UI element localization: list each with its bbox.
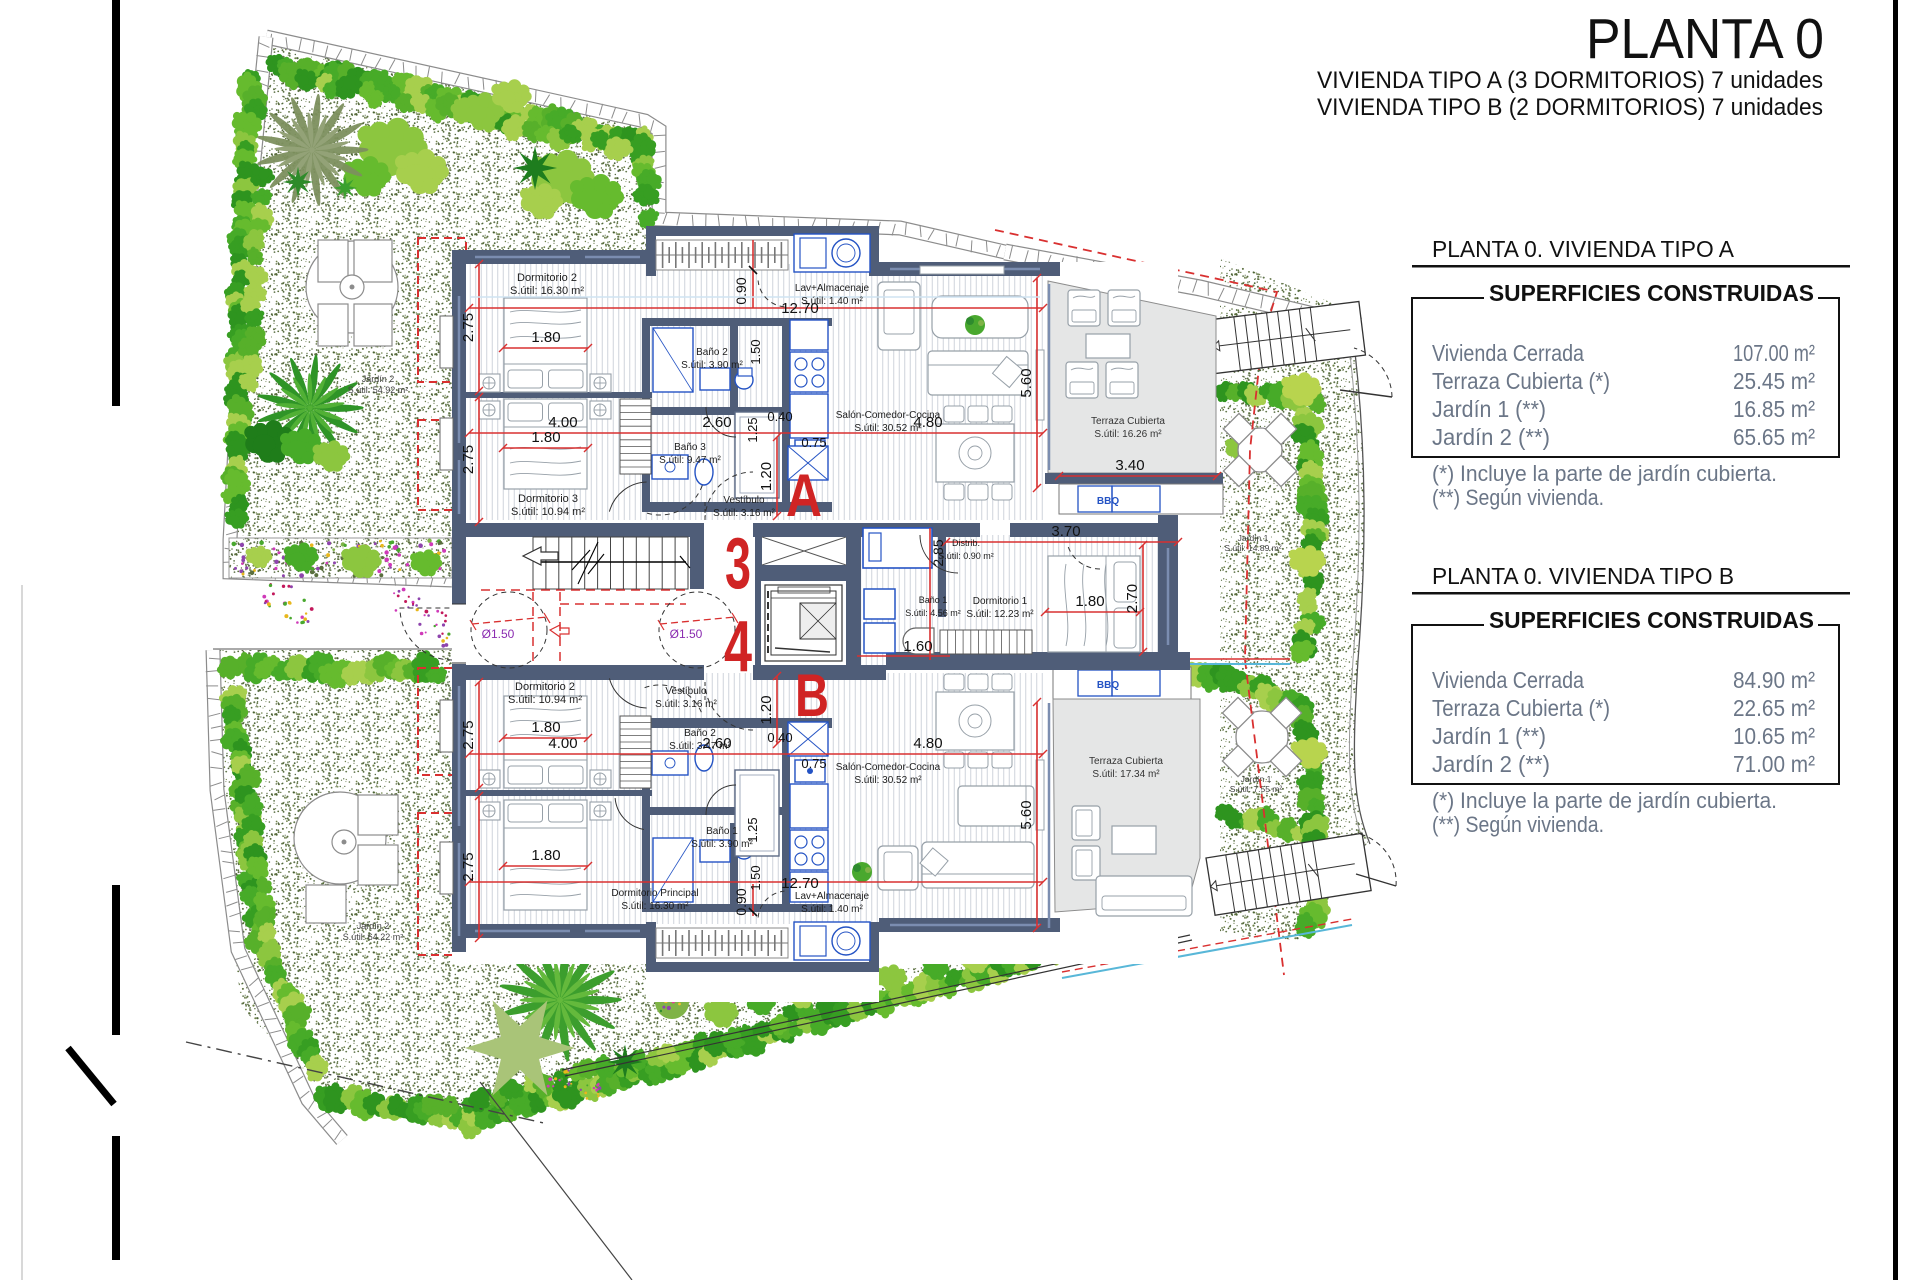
svg-text:(*) Incluye la parte de jardí: (*) Incluye la parte de jardín cubierta. (1432, 788, 1777, 813)
svg-text:1.50: 1.50 (748, 865, 763, 890)
svg-text:1.80: 1.80 (531, 847, 560, 864)
svg-text:107.00 m²: 107.00 m² (1733, 340, 1815, 366)
svg-text:BBQ: BBQ (1097, 680, 1119, 691)
svg-text:10.65 m²: 10.65 m² (1733, 723, 1815, 749)
svg-text:Jardín 2: Jardín 2 (357, 921, 390, 931)
svg-text:(**) Según vivienda.: (**) Según vivienda. (1432, 812, 1604, 837)
svg-text:Dormitorio 3: Dormitorio 3 (518, 493, 578, 505)
svg-text:Terraza Cubierta: Terraza Cubierta (1089, 756, 1163, 767)
svg-text:PLANTA 0: PLANTA 0 (1586, 7, 1824, 71)
svg-text:S.útil: 14.89 m²: S.útil: 14.89 m² (1224, 543, 1281, 553)
svg-text:S.útil: 16.30 m²: S.útil: 16.30 m² (621, 901, 689, 912)
svg-text:4.80: 4.80 (913, 735, 942, 752)
svg-text:S.útil: 4.56 m²: S.útil: 4.56 m² (905, 608, 961, 618)
svg-text:S.útil: 7.55 m²: S.útil: 7.55 m² (1230, 784, 1283, 794)
svg-text:S.útil: 30.52 m²: S.útil: 30.52 m² (854, 775, 922, 786)
svg-text:Dormitorio 2: Dormitorio 2 (517, 272, 577, 284)
svg-text:Dormitorio Principal: Dormitorio Principal (611, 888, 698, 899)
svg-text:Ø1.50: Ø1.50 (670, 627, 703, 641)
svg-text:Baño 1: Baño 1 (919, 595, 948, 605)
svg-text:Vestíbulo: Vestíbulo (723, 495, 765, 506)
svg-text:(**) Según vivienda.: (**) Según vivienda. (1432, 485, 1604, 510)
svg-text:S.útil: 0.90 m²: S.útil: 0.90 m² (938, 551, 994, 561)
svg-text:Baño 2: Baño 2 (696, 347, 728, 358)
svg-text:S.útil: 3.90 m²: S.útil: 3.90 m² (691, 839, 753, 850)
svg-text:BBQ: BBQ (1097, 496, 1119, 507)
svg-text:PLANTA 0. VIVIENDA TIPO A: PLANTA 0. VIVIENDA TIPO A (1432, 236, 1735, 262)
svg-text:S.útil: 64.22 m²: S.útil: 64.22 m² (343, 932, 404, 942)
svg-text:2.70: 2.70 (1124, 584, 1141, 613)
svg-text:1.80: 1.80 (531, 429, 560, 446)
svg-text:S.útil: 3.90 m²: S.útil: 3.90 m² (681, 360, 743, 371)
svg-text:S.útil: 16.26 m²: S.útil: 16.26 m² (1094, 429, 1162, 440)
svg-text:S.útil: 10.94 m²: S.útil: 10.94 m² (508, 694, 582, 706)
svg-text:S.útil: 3.16 m²: S.útil: 3.16 m² (655, 699, 717, 710)
svg-text:5.60: 5.60 (1018, 800, 1035, 829)
svg-text:Terraza Cubierta (*): Terraza Cubierta (*) (1432, 695, 1610, 721)
svg-text:Jardín 1 (**): Jardín 1 (**) (1432, 723, 1546, 749)
svg-text:S.útil: 17.34 m²: S.útil: 17.34 m² (1092, 769, 1160, 780)
svg-text:Jardín 1: Jardín 1 (1238, 533, 1269, 543)
svg-text:S.útil: 12.23 m²: S.útil: 12.23 m² (966, 609, 1034, 620)
svg-text:Lav+Almacenaje: Lav+Almacenaje (795, 283, 870, 294)
svg-text:2.60: 2.60 (702, 414, 731, 431)
svg-text:Jardín 1 (**): Jardín 1 (**) (1432, 396, 1546, 422)
svg-text:Vivienda Cerrada: Vivienda Cerrada (1432, 340, 1584, 366)
svg-text:1.80: 1.80 (1075, 593, 1104, 610)
svg-text:Ø1.50: Ø1.50 (482, 627, 515, 641)
svg-text:0.90: 0.90 (733, 277, 749, 304)
svg-text:Jardín 1: Jardín 1 (1241, 774, 1272, 784)
svg-text:VIVIENDA TIPO A (3 DORMITORIOS: VIVIENDA TIPO A (3 DORMITORIOS) 7 unidad… (1317, 67, 1823, 94)
svg-text:Terraza Cubierta (*): Terraza Cubierta (*) (1432, 368, 1610, 394)
svg-text:1.25: 1.25 (745, 417, 760, 442)
svg-text:2.75: 2.75 (460, 852, 477, 881)
svg-text:S.útil: 3.16 m²: S.útil: 3.16 m² (713, 508, 775, 519)
svg-text:S.útil: 30.52 m²: S.útil: 30.52 m² (854, 423, 922, 434)
svg-text:Vivienda Cerrada: Vivienda Cerrada (1432, 667, 1584, 693)
svg-text:5.60: 5.60 (1018, 368, 1035, 397)
svg-text:1.80: 1.80 (531, 329, 560, 346)
svg-text:12.70: 12.70 (781, 875, 819, 892)
svg-text:Baño 3: Baño 3 (674, 442, 706, 453)
svg-text:0.90: 0.90 (733, 888, 749, 915)
svg-text:84.90 m²: 84.90 m² (1733, 667, 1815, 693)
svg-text:S.útil: 1.40 m²: S.útil: 1.40 m² (801, 904, 863, 915)
svg-text:Jardín 2 (**): Jardín 2 (**) (1432, 751, 1550, 777)
svg-text:SUPERFICIES CONSTRUIDAS: SUPERFICIES CONSTRUIDAS (1489, 280, 1814, 306)
svg-text:Vestíbulo: Vestíbulo (665, 686, 707, 697)
svg-text:PLANTA 0. VIVIENDA TIPO B: PLANTA 0. VIVIENDA TIPO B (1432, 563, 1734, 589)
svg-text:1.20: 1.20 (758, 462, 775, 491)
svg-text:3.70: 3.70 (1051, 523, 1080, 540)
svg-text:0.75: 0.75 (801, 435, 826, 450)
svg-text:2.75: 2.75 (460, 720, 477, 749)
svg-text:Distrib.: Distrib. (952, 538, 980, 548)
svg-text:Lav+Almacenaje: Lav+Almacenaje (795, 891, 870, 902)
svg-text:16.85 m²: 16.85 m² (1733, 396, 1815, 422)
svg-text:2.75: 2.75 (460, 313, 477, 342)
svg-text:Dormitorio 2: Dormitorio 2 (515, 681, 575, 693)
svg-text:71.00 m²: 71.00 m² (1733, 751, 1815, 777)
svg-text:(*) Incluye la parte de jardí: (*) Incluye la parte de jardín cubierta. (1432, 461, 1777, 486)
svg-text:0.75: 0.75 (801, 756, 826, 771)
svg-text:SUPERFICIES CONSTRUIDAS: SUPERFICIES CONSTRUIDAS (1489, 607, 1814, 633)
svg-text:Jardín 2: Jardín 2 (362, 374, 395, 384)
svg-text:3: 3 (725, 524, 751, 604)
svg-text:1.20: 1.20 (758, 695, 775, 724)
svg-text:1.60: 1.60 (903, 638, 932, 655)
svg-text:2.75: 2.75 (460, 445, 477, 474)
svg-text:0.40: 0.40 (767, 730, 792, 745)
svg-text:1.80: 1.80 (531, 719, 560, 736)
svg-text:Terraza Cubierta: Terraza Cubierta (1091, 416, 1165, 427)
svg-text:Baño 1: Baño 1 (706, 826, 738, 837)
svg-text:65.65 m²: 65.65 m² (1733, 424, 1815, 450)
svg-text:VIVIENDA TIPO B (2 DORMITORIOS: VIVIENDA TIPO B (2 DORMITORIOS) 7 unidad… (1317, 94, 1823, 121)
svg-text:A: A (786, 462, 822, 529)
svg-text:Salón-Comedor-Cocina: Salón-Comedor-Cocina (836, 762, 941, 773)
svg-text:S.útil: 3.47 m²: S.útil: 3.47 m² (669, 741, 731, 752)
svg-text:Salón-Comedor-Cocina: Salón-Comedor-Cocina (836, 410, 941, 421)
svg-text:B: B (795, 662, 829, 729)
svg-text:Jardín 2 (**): Jardín 2 (**) (1432, 424, 1550, 450)
svg-text:S.útil: 9.47 m²: S.útil: 9.47 m² (659, 455, 721, 466)
svg-text:22.65 m²: 22.65 m² (1733, 695, 1815, 721)
svg-text:S.útil: 16.30 m²: S.útil: 16.30 m² (510, 285, 584, 297)
svg-text:S.útil: 10.94 m²: S.útil: 10.94 m² (511, 506, 585, 518)
svg-text:0.40: 0.40 (767, 409, 792, 424)
svg-text:1.50: 1.50 (748, 339, 763, 364)
svg-text:25.45 m²: 25.45 m² (1733, 368, 1815, 394)
svg-text:S.útil: 54.92 m²: S.útil: 54.92 m² (348, 385, 409, 395)
svg-text:Baño 2: Baño 2 (684, 728, 716, 739)
svg-text:3.40: 3.40 (1115, 457, 1144, 474)
svg-text:Dormitorio 1: Dormitorio 1 (973, 596, 1028, 607)
svg-text:S.útil: 1.40 m²: S.útil: 1.40 m² (801, 296, 863, 307)
svg-text:4: 4 (724, 607, 752, 687)
